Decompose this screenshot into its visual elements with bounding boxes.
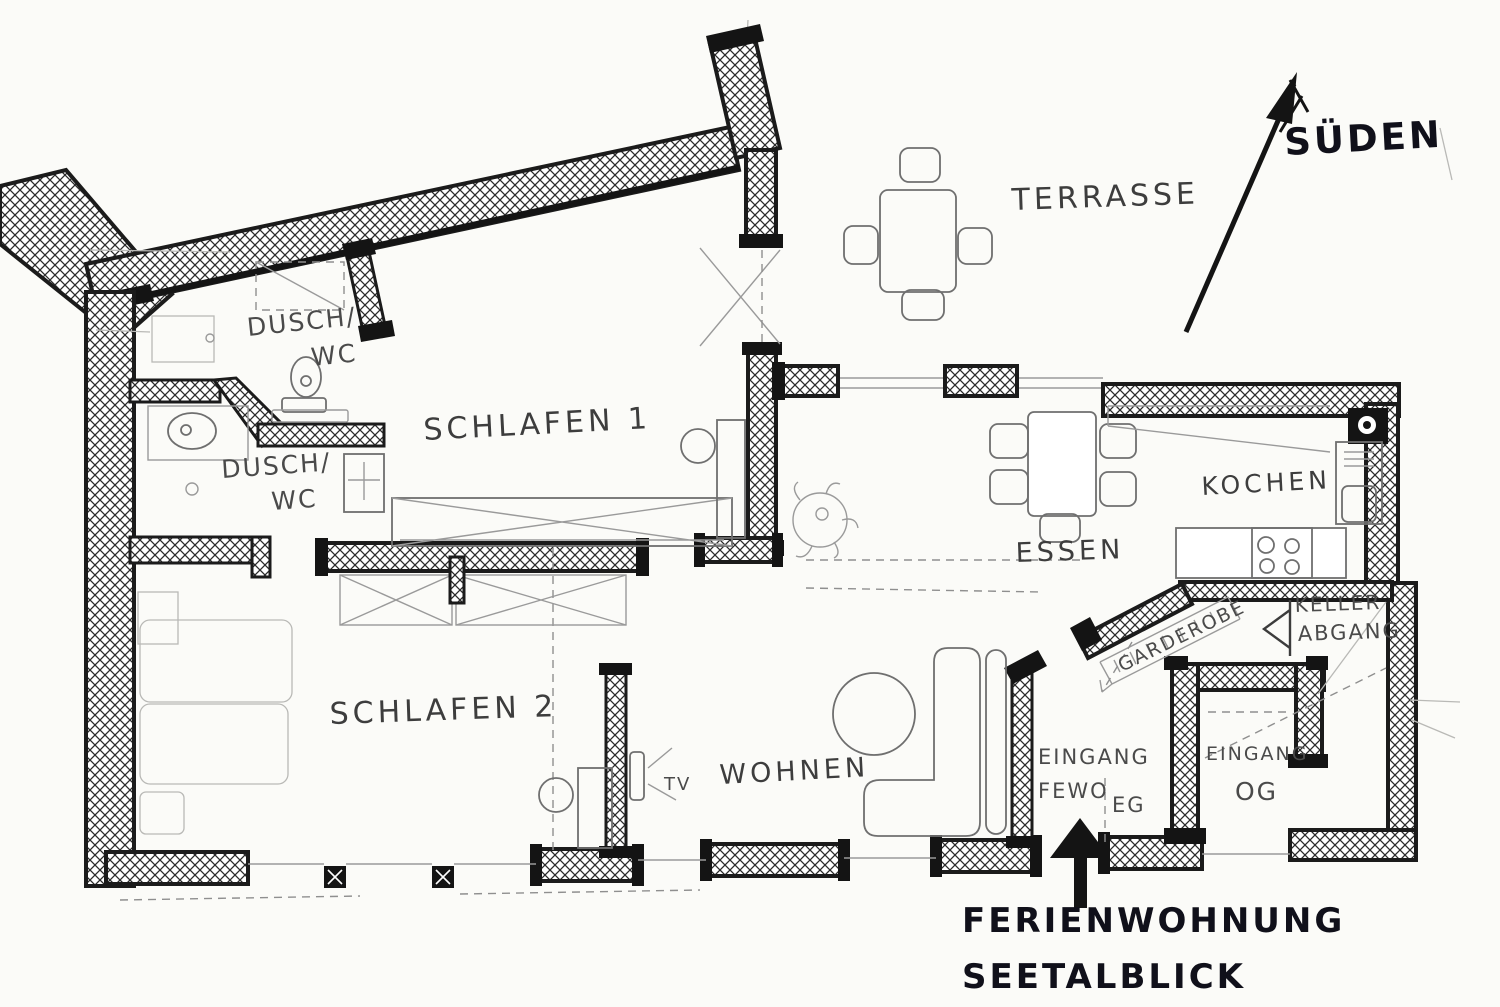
label-south: SÜDEN [1283,112,1444,164]
plant [793,482,858,558]
window-dining-1 [840,378,945,388]
terrace-door-swing [700,248,780,346]
wall-top-diagonal [86,127,739,308]
label-entry-fewo-3: EG [1112,793,1146,817]
dining-furniture [990,412,1136,542]
label-cellar-2: ABGANG [1297,618,1401,646]
terrace-table [880,190,956,292]
wall-bottom-left [106,852,248,884]
sofa-cushion [986,650,1006,834]
title-line2: SEETALBLICK [962,957,1246,997]
wall-terrace-door-left [746,150,776,240]
label-cellar-1: KELLER [1294,590,1381,617]
exterior-walls [0,24,1416,900]
l-sofa [864,648,980,836]
dining-table [1028,412,1096,516]
label-bath1-2: WC [310,338,359,372]
bedroom1-furniture [340,420,745,625]
wall-dining-top-a [778,366,838,396]
side-table-1 [681,429,715,463]
post-2 [432,866,454,888]
terrace-furniture [844,148,992,320]
label-entry-fewo-1: EINGANG [1038,745,1150,769]
wall-dining-top-b [945,366,1017,396]
label-bedroom1: SCHLAFEN 1 [423,401,652,448]
post-1 [324,866,346,888]
label-entry-og-2: OG [1235,777,1278,806]
wall-bath2-bottom [130,537,270,563]
wall-living-entry-divider [1012,666,1032,842]
label-bath2-1: DUSCH/ [220,447,332,484]
round-table [833,673,915,755]
floorplan-sketch-page: SÜDEN TERRASSE DUSCH/ WC DUSCH/ WC SCHLA… [0,0,1500,1007]
label-dining: ESSEN [1015,534,1125,569]
label-bath1-1: DUSCH/ [246,302,359,342]
floorplan-svg: SÜDEN TERRASSE DUSCH/ WC DUSCH/ WC SCHLA… [0,0,1500,1007]
wall-bottom-right [1290,830,1416,860]
south-arrow [1186,72,1308,332]
label-tv: TV [663,774,691,795]
label-bath2-2: WC [270,484,318,516]
label-kitchen: KOCHEN [1201,465,1332,501]
bedroom2-furniture [140,620,612,848]
wall-dining-left [748,348,776,548]
label-entry-og-1: EINGANG [1206,743,1308,765]
bed-2a [140,620,292,702]
label-entry-fewo-2: FEWO [1038,779,1109,803]
stool [539,778,573,812]
wall-bottom-c [706,844,844,876]
label-bedroom2: SCHLAFEN 2 [329,689,558,732]
shower-2 [344,454,384,512]
sink-2 [168,413,216,449]
window-dining-2 [1019,378,1103,388]
cabinet-1 [717,420,745,538]
wall-bath1-bottom-b [258,424,384,446]
wall-bedroom1-bottom-right [700,538,778,562]
wall-bedroom1-bottom [322,543,642,571]
wall-left [86,292,134,886]
title-line1: FERIENWOHNUNG [962,901,1345,941]
bed-2b [140,704,288,784]
label-living: WOHNEN [719,752,870,791]
wall-og-left [1172,664,1198,836]
wall-bath1-bottom-a [130,380,220,402]
label-terrace: TERRASSE [1010,176,1199,218]
cellar-arrow [1264,600,1290,656]
wall-bedroom2-living-divider [606,670,626,852]
nightstand-2 [140,792,184,834]
